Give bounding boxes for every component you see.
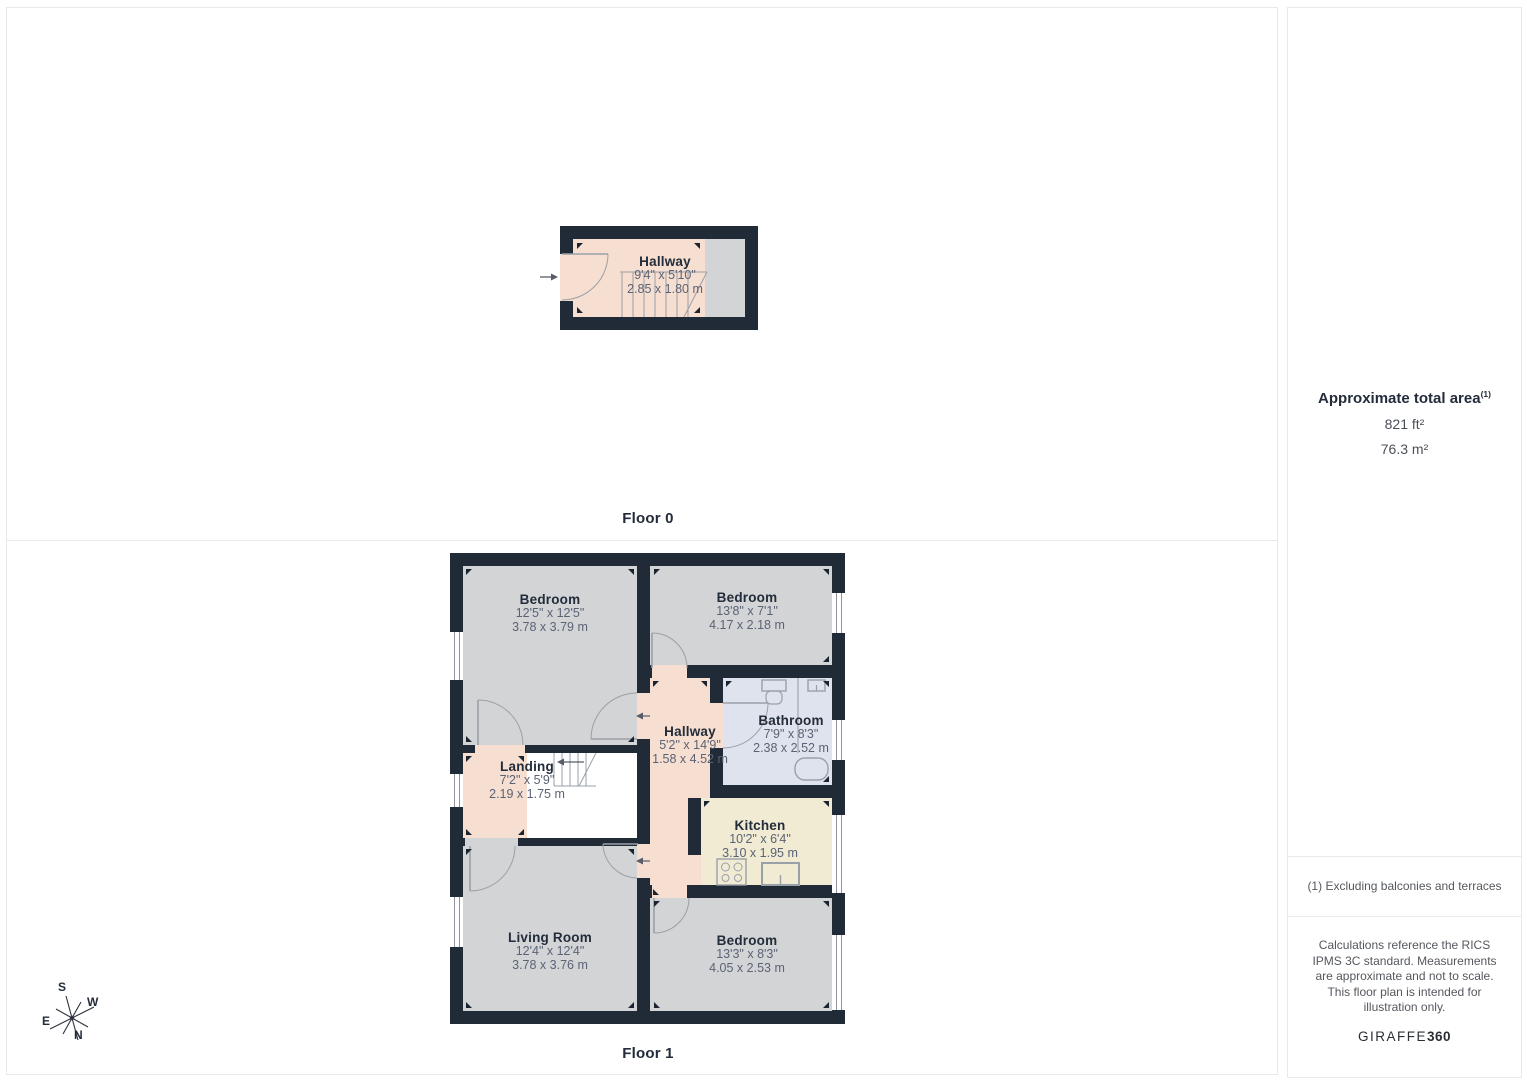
panel-divider-bottom — [1288, 916, 1521, 917]
compass-south-label: S — [58, 980, 66, 994]
brand-regular: GIRAFFE — [1358, 1029, 1427, 1044]
total-area-imperial: 821 ft² — [1288, 416, 1521, 432]
giraffe360-logo: GIRAFFE360 — [1288, 1029, 1521, 1044]
total-area-metric: 76.3 m² — [1288, 441, 1521, 457]
disclaimer-text: Calculations reference the RICS IPMS 3C … — [1309, 938, 1500, 1016]
floor1-plan — [450, 553, 845, 1024]
floor0-plan — [538, 226, 758, 330]
area-title-footnote-marker: (1) — [1481, 389, 1491, 399]
total-area-title: Approximate total area(1) — [1288, 389, 1521, 407]
panel-divider-top — [1288, 856, 1521, 857]
info-panel: Approximate total area(1) 821 ft² 76.3 m… — [1287, 7, 1522, 1078]
brand-bold: 360 — [1427, 1029, 1451, 1044]
total-area-block: Approximate total area(1) 821 ft² 76.3 m… — [1288, 389, 1521, 457]
floor0-label: Floor 0 — [548, 510, 748, 527]
floor-section-divider — [6, 540, 1277, 541]
floorplan-page: { "floors": [ { "label": "Floor 0", "roo… — [0, 0, 1527, 1080]
area-footnote: (1) Excluding balconies and terraces — [1298, 879, 1511, 893]
compass-west-label: W — [87, 995, 98, 1009]
compass-north-label: N — [74, 1028, 83, 1042]
floor1-label: Floor 1 — [548, 1045, 748, 1062]
windows-left — [450, 632, 463, 947]
compass-east-label: E — [42, 1014, 50, 1028]
